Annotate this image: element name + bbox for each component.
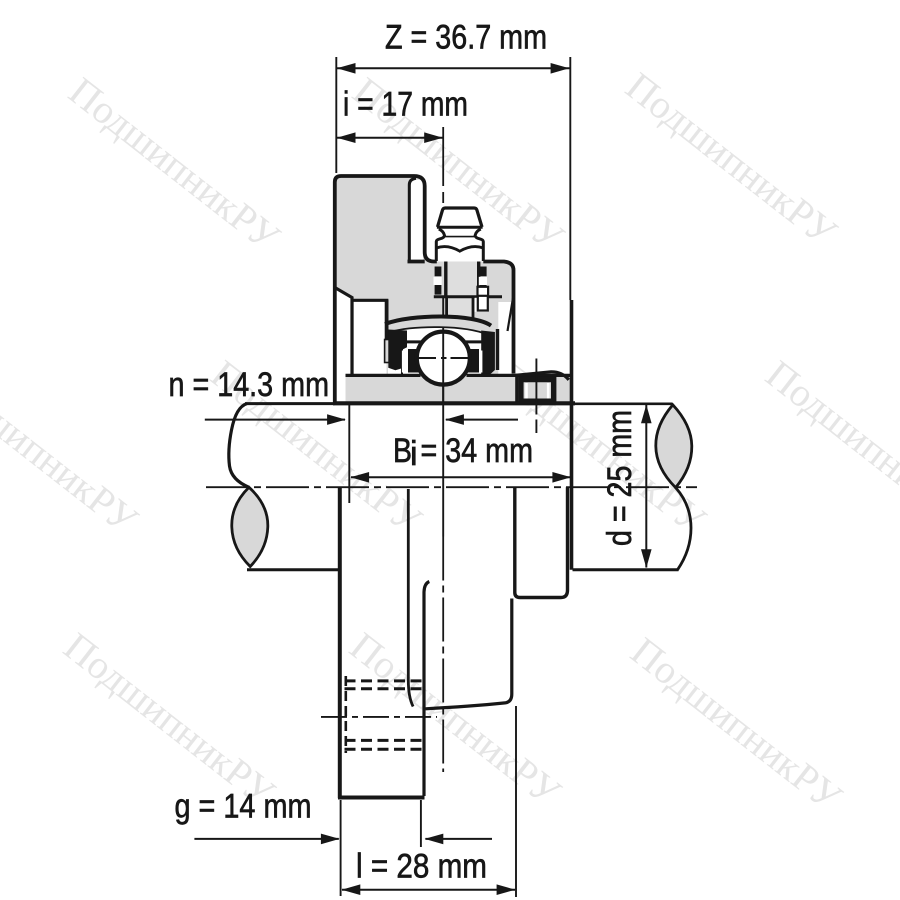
svg-text:l = 28 mm: l = 28 mm bbox=[356, 848, 487, 886]
svg-text:n = 14.3 mm: n = 14.3 mm bbox=[169, 366, 330, 404]
svg-text:g = 14 mm: g = 14 mm bbox=[175, 788, 312, 826]
svg-text:i: i bbox=[410, 435, 418, 473]
svg-text:Z = 36.7 mm: Z = 36.7 mm bbox=[385, 19, 547, 57]
svg-text:i = 17 mm: i = 17 mm bbox=[343, 86, 468, 124]
svg-text:= 34 mm: = 34 mm bbox=[421, 432, 534, 470]
svg-text:d = 25 mm: d = 25 mm bbox=[601, 410, 639, 546]
